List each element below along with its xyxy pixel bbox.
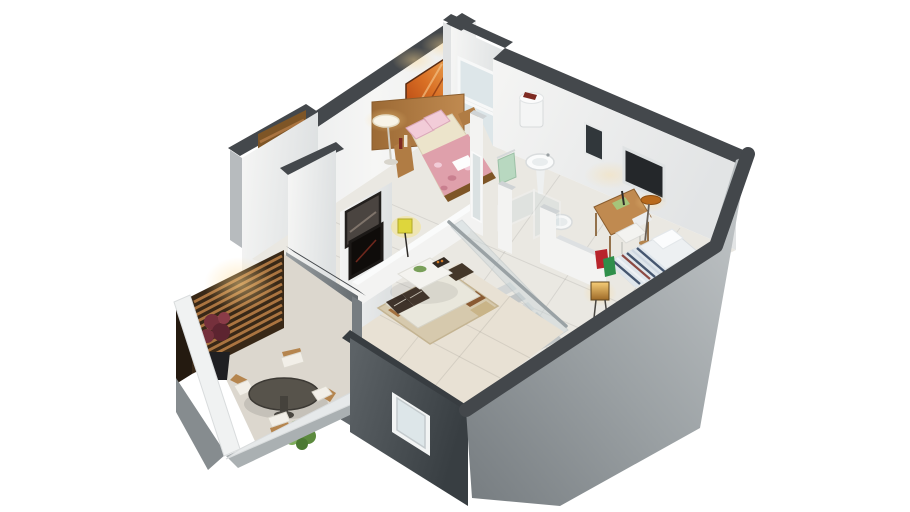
green-bag (603, 256, 616, 277)
tray-food (441, 260, 444, 263)
white-floor-lamp-shade (373, 115, 399, 127)
red-plant-foliage (212, 323, 230, 341)
tray-food (437, 261, 440, 264)
duvet-pattern (448, 175, 457, 181)
yellow-floor-lamp-head (398, 219, 412, 233)
bottle (399, 138, 402, 149)
hall-partition (498, 184, 512, 254)
duvet-pattern (434, 162, 442, 167)
red-plant-foliage (218, 312, 230, 324)
sink-faucet (546, 153, 549, 156)
green-bush (296, 438, 308, 450)
sink-bowl (532, 158, 548, 166)
glowing-cube-lamp (591, 282, 609, 300)
orange-floor-lamp-shade (641, 196, 661, 205)
west-return-wall (230, 150, 242, 248)
bottle (404, 135, 407, 147)
bathroom-glass-door (472, 152, 481, 222)
green-bowl (414, 266, 427, 272)
warm-accent-light (204, 257, 276, 311)
floorplan-render (0, 0, 910, 512)
isometric-house-svg (0, 0, 910, 512)
duvet-pattern (440, 186, 447, 191)
hall-partition (540, 207, 556, 270)
floor-lamp-base (384, 159, 398, 165)
